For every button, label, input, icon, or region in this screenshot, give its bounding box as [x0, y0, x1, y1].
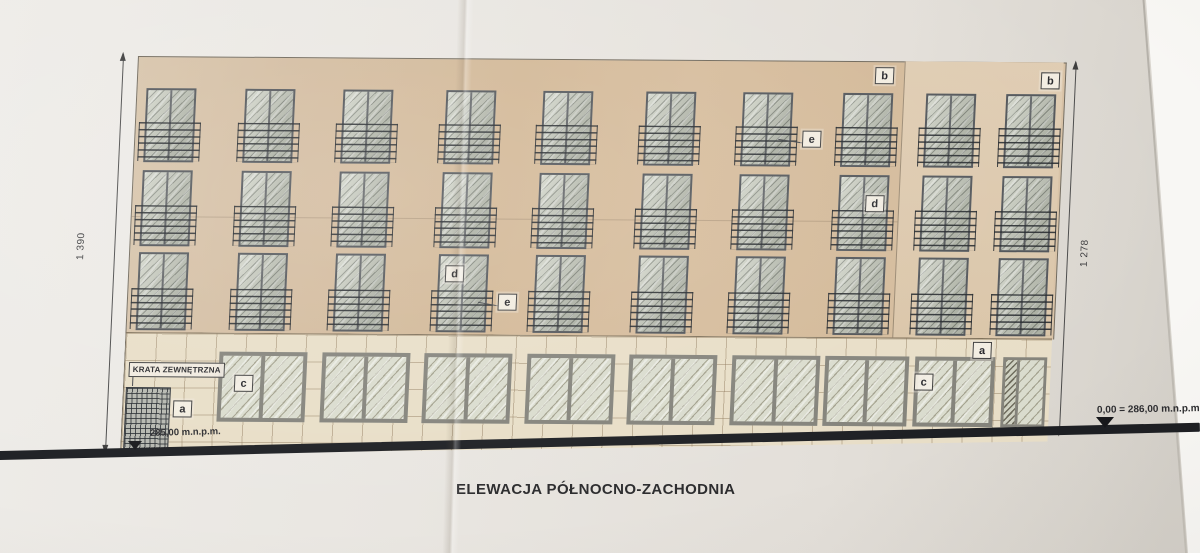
annotation-tag-b: b	[1041, 72, 1061, 89]
window-railing	[437, 124, 501, 164]
facade-window	[635, 256, 689, 334]
storefront-window	[912, 357, 995, 428]
elevation-marker-right: 0,00 = 286,00 m.n.p.m.	[1097, 403, 1200, 416]
facade-window	[532, 255, 586, 333]
storefront-window	[421, 353, 512, 424]
entrance-door	[1000, 357, 1047, 427]
dimension-line-left	[105, 54, 124, 452]
storefront-window	[729, 355, 820, 426]
annotation-tag-a: a	[173, 400, 193, 417]
facade-window	[242, 89, 295, 163]
window-railing	[433, 207, 497, 248]
facade-window	[836, 175, 889, 251]
annotation-tag-d: d	[865, 195, 885, 212]
grille-label: KRATA ZEWNĘTRZNA	[128, 362, 225, 378]
window-railing	[826, 293, 890, 335]
annotation-tag-a: a	[972, 342, 992, 359]
window-railing	[830, 210, 894, 251]
facade-window	[336, 171, 389, 247]
window-railing	[629, 292, 693, 334]
facade-window	[832, 257, 886, 335]
annotation-tag-b: b	[875, 67, 895, 84]
storefront-window	[216, 352, 307, 423]
facade-window	[1003, 94, 1056, 168]
window-railing	[429, 290, 493, 332]
window-railing	[917, 128, 981, 168]
dimension-arrow-icon	[1072, 61, 1078, 70]
window-railing	[834, 127, 898, 167]
window-railing	[530, 208, 594, 249]
facade-window	[536, 173, 589, 249]
window-railing	[730, 209, 794, 250]
facade-window	[736, 174, 789, 250]
facade-window	[840, 93, 893, 167]
annotation-tag-e: e	[497, 294, 517, 311]
facade-window	[443, 90, 496, 164]
window-railing	[236, 123, 300, 163]
facade-window	[235, 253, 289, 331]
window-railing	[327, 289, 391, 331]
window-railing	[130, 288, 194, 330]
window-railing	[534, 125, 598, 165]
window-railing	[726, 292, 790, 334]
window-railing	[334, 124, 398, 164]
dimension-arrow-icon	[120, 52, 126, 61]
window-railing	[137, 122, 201, 162]
window-railing	[229, 289, 293, 331]
storefront-window	[626, 355, 717, 426]
facade-window	[923, 94, 976, 168]
elevation-marker-left: 285,00 m.n.p.m.	[150, 426, 221, 439]
window-railing	[909, 293, 973, 335]
annotation-tag-c: c	[914, 374, 934, 391]
facade-window	[732, 256, 786, 334]
facade-window	[995, 258, 1049, 336]
facade-window	[136, 252, 190, 330]
facade-window	[740, 92, 793, 166]
facade-window	[238, 171, 291, 247]
storefront-window	[524, 354, 615, 425]
window-railing	[734, 126, 798, 166]
annotation-tag-c: c	[234, 375, 254, 392]
window-railing	[232, 206, 296, 247]
window-railing	[913, 211, 977, 252]
window-railing	[526, 291, 590, 333]
dimension-label-left: 1 390	[75, 232, 87, 260]
window-railing	[993, 211, 1057, 252]
facade-window	[919, 176, 972, 252]
annotation-tag-e: e	[802, 131, 822, 148]
window-railing	[133, 205, 197, 246]
facade-window	[139, 170, 192, 246]
dimension-label-right: 1 278	[1079, 239, 1091, 267]
window-railing	[330, 207, 394, 248]
window-railing	[997, 128, 1061, 168]
elevation-drawing: KRATA ZEWNĘTRZNA 1 390 1 278 bbeddeacca	[120, 56, 1065, 461]
facade-window	[643, 92, 696, 166]
window-railing	[637, 126, 701, 166]
facade-window	[639, 174, 692, 250]
window-railing	[633, 209, 697, 250]
facade-window	[439, 172, 492, 248]
elevation-triangle-icon	[1096, 417, 1114, 428]
storefront-window	[319, 352, 410, 423]
photographed-sheet: KRATA ZEWNĘTRZNA 1 390 1 278 bbeddeacca …	[0, 0, 1200, 553]
door-glass-pane	[1017, 360, 1044, 424]
facade-window	[999, 176, 1052, 252]
facade-window	[340, 89, 393, 163]
drawing-title: ELEWACJA PÓŁNOCNO-ZACHODNIA	[456, 481, 735, 498]
facade-window	[540, 91, 593, 165]
annotation-tag-d: d	[445, 265, 465, 282]
facade-window	[915, 258, 969, 336]
storefront-window	[822, 356, 909, 427]
facade-window	[143, 88, 196, 162]
elevation-triangle-icon	[128, 441, 142, 450]
window-railing	[989, 294, 1053, 336]
facade-window	[333, 253, 387, 331]
